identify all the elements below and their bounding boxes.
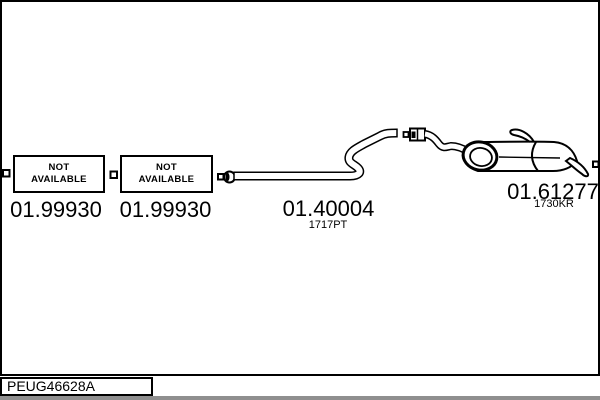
part-number-center-pipe[interactable]: 01.40004 bbox=[282, 198, 375, 220]
status-line: AVAILABLE bbox=[139, 174, 195, 186]
center-pipe bbox=[234, 129, 397, 181]
clamp-ring-icon bbox=[218, 172, 235, 183]
hanger-hook-icon bbox=[510, 130, 534, 142]
mount-point-icon bbox=[593, 162, 599, 168]
status-line: NOT bbox=[156, 162, 177, 174]
status-line: AVAILABLE bbox=[31, 174, 87, 186]
mount-point-icon bbox=[111, 172, 118, 179]
silencer-inlet-pipe bbox=[425, 134, 469, 152]
status-line: NOT bbox=[49, 162, 70, 174]
pipe-coupler-icon bbox=[404, 129, 426, 141]
part-number-front-1[interactable]: 01.99930 bbox=[7, 199, 105, 221]
part-box-front-section-1[interactable]: NOT AVAILABLE bbox=[13, 155, 105, 193]
variant-code-rear-silencer: 1730KR bbox=[518, 199, 590, 210]
mount-point-icon bbox=[3, 170, 10, 177]
diagram-reference-code: PEUG46628A bbox=[0, 377, 153, 396]
silencer-seam-line bbox=[499, 157, 560, 158]
part-number-front-2[interactable]: 01.99930 bbox=[116, 199, 215, 221]
rear-silencer bbox=[460, 130, 588, 177]
variant-code-center-pipe: 1717PT bbox=[292, 220, 364, 231]
part-box-front-section-2[interactable]: NOT AVAILABLE bbox=[120, 155, 213, 193]
footer-strip bbox=[0, 396, 600, 400]
exhaust-diagram-page: NOT AVAILABLE NOT AVAILABLE 01.99930 01.… bbox=[0, 0, 600, 400]
